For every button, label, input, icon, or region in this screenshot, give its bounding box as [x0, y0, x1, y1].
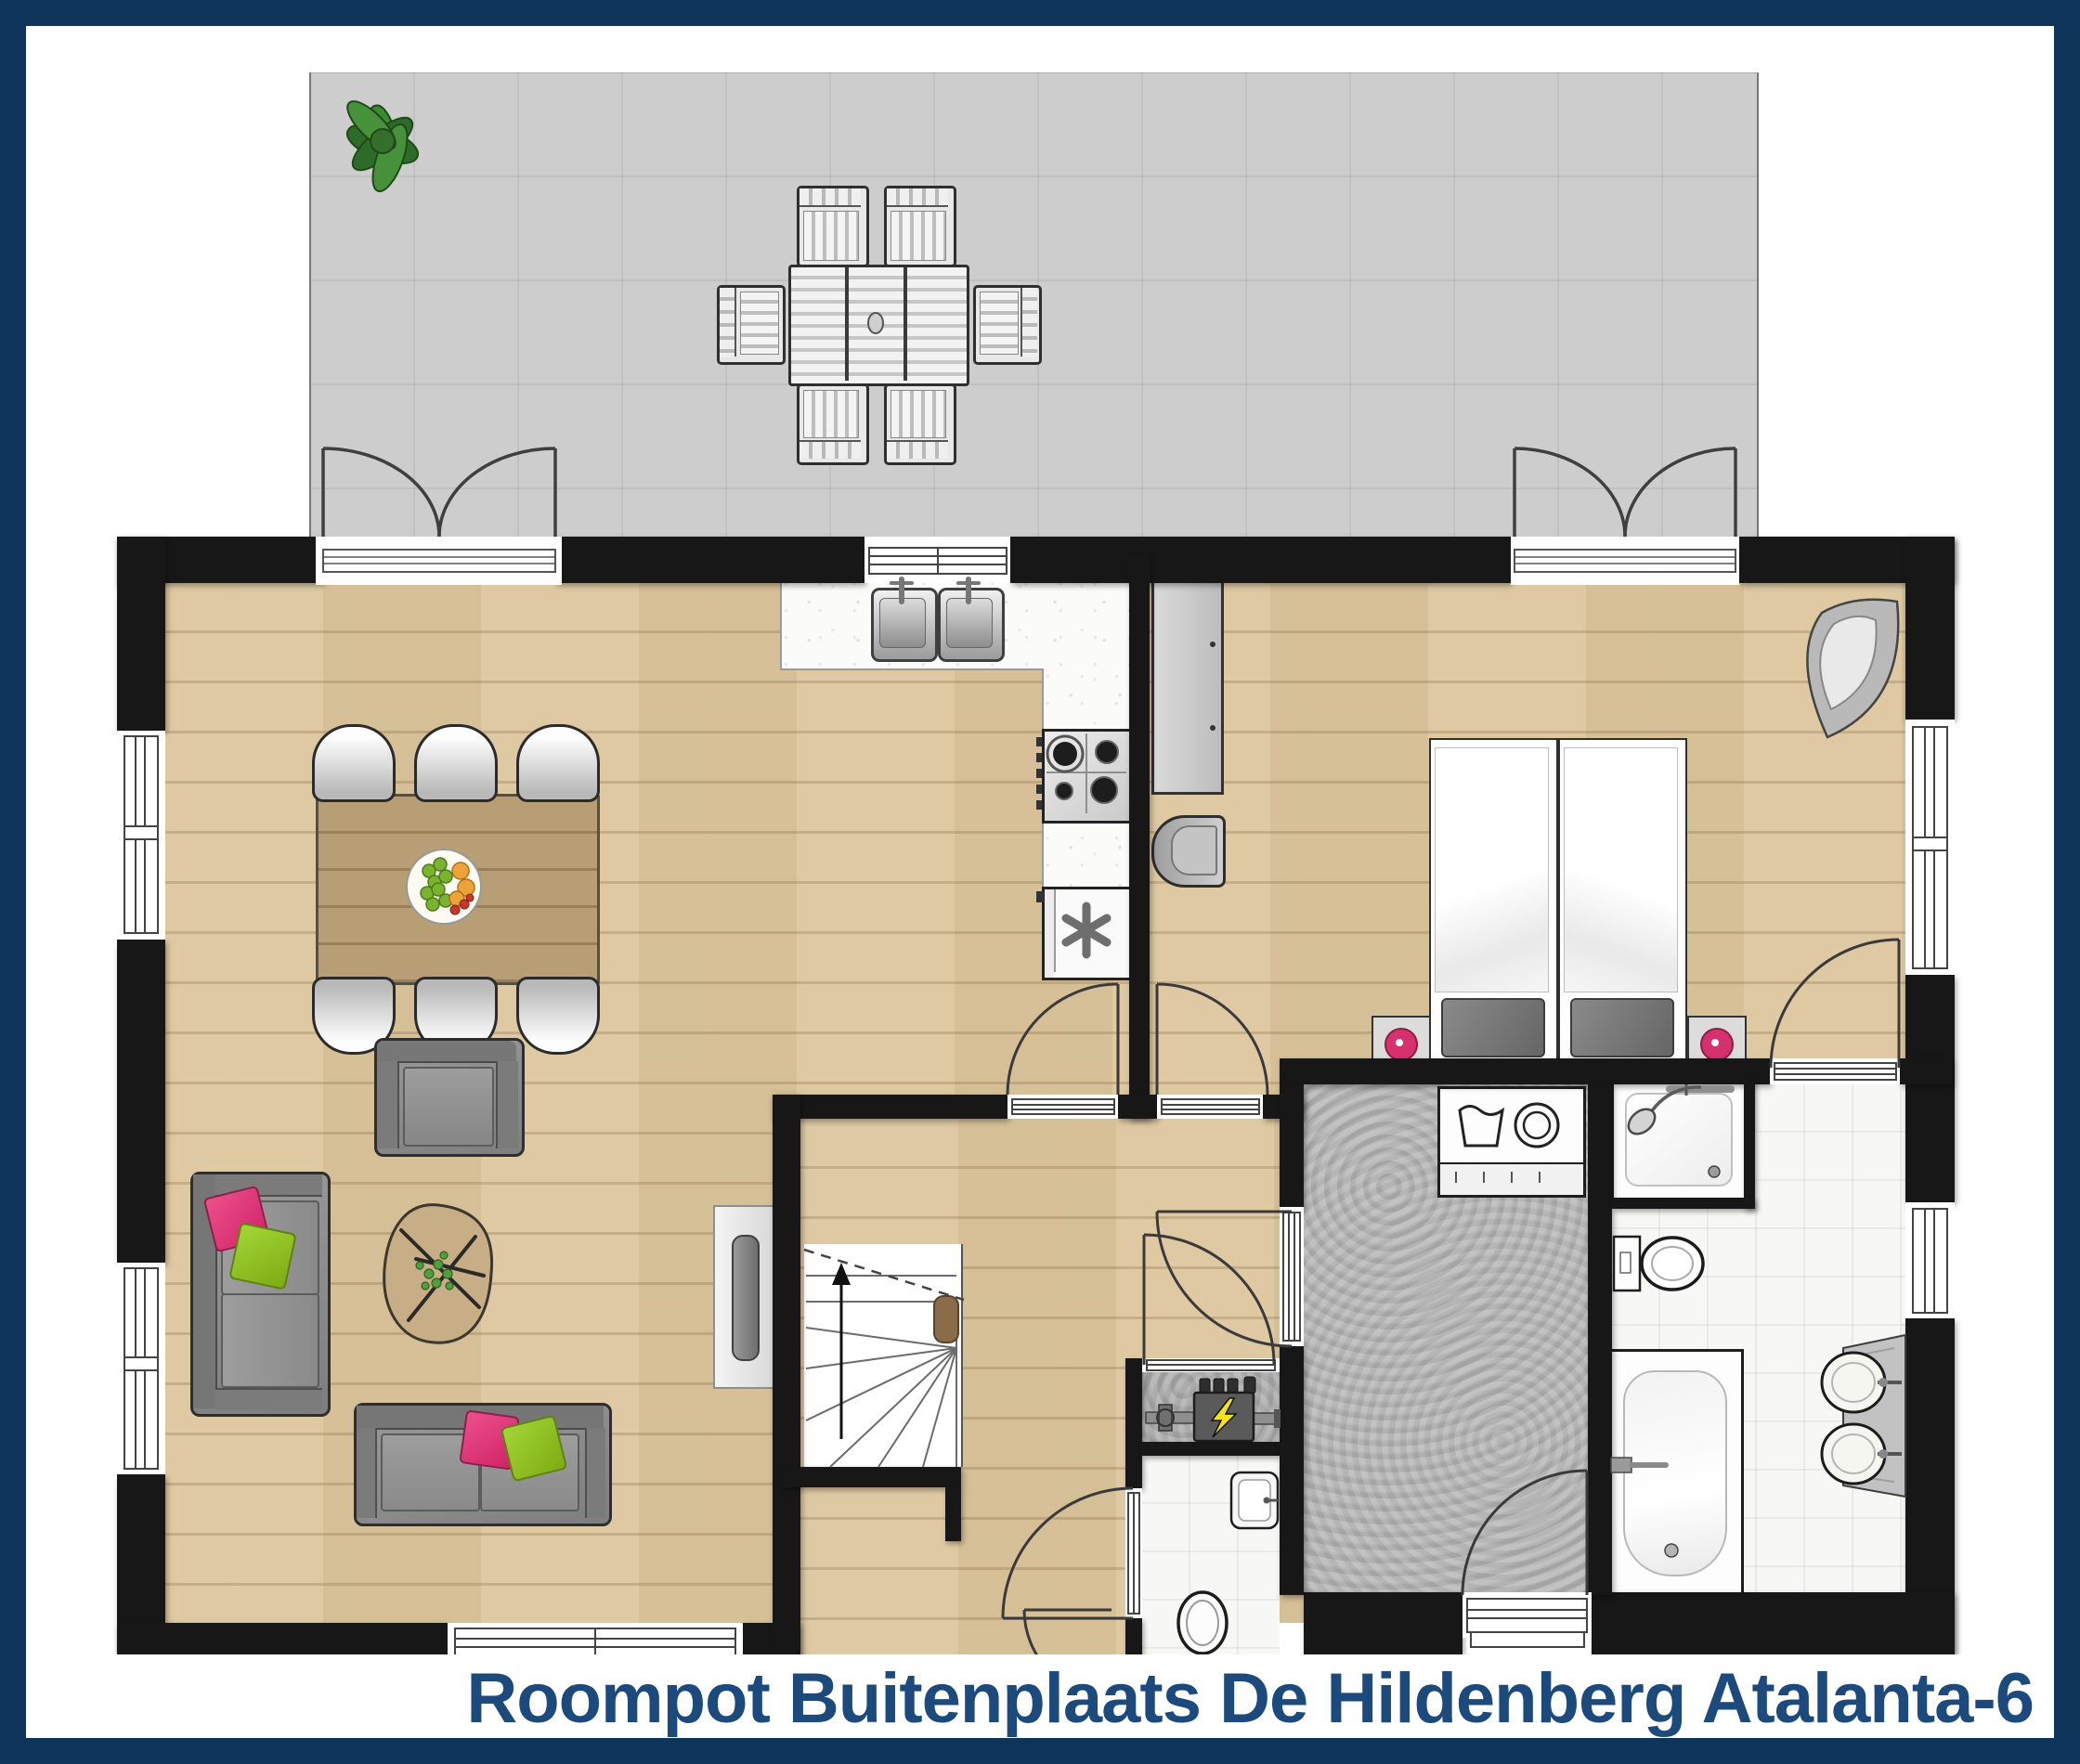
plant-icon: [341, 95, 423, 196]
staircase: [804, 1250, 964, 1467]
table-umbrella-hole: [868, 313, 883, 333]
coffee-table: [384, 1205, 492, 1343]
washing-machine-icon: [1456, 1104, 1558, 1183]
corner-washbasin: [1807, 600, 1898, 737]
window-frame: [1913, 727, 1947, 1313]
toilet-room-toilet: [1178, 1592, 1227, 1654]
plan-annotations: [0, 0, 2080, 1764]
page-title: Roompot Buitenplaats De Hildenberg Atala…: [466, 1658, 2034, 1739]
shower-drain: [1709, 1166, 1720, 1177]
shower-head-icon: [1624, 1084, 1731, 1177]
vanity-double-sinks: [1822, 1335, 1905, 1497]
stair-newel: [934, 1296, 958, 1342]
freezer-icon: [1066, 906, 1107, 954]
window-frame: [124, 736, 158, 1469]
freezer-hinge: [1036, 891, 1044, 902]
window-frame: [869, 548, 1007, 574]
fruit-bowl-icon: [407, 850, 481, 924]
french-door-bedroom-icon: [1514, 448, 1735, 572]
french-door-living-icon: [323, 448, 555, 572]
floorplan-canvas: Roompot Buitenplaats De Hildenberg Atala…: [0, 0, 2080, 1764]
toilet-room-basin: [1231, 1472, 1278, 1528]
stove-burners: [1036, 733, 1126, 813]
electric-panel: [1146, 1377, 1280, 1441]
bathtub-fittings: [1611, 1458, 1678, 1557]
bathroom-toilet: [1614, 1237, 1703, 1291]
faucet-icon: [891, 579, 979, 602]
